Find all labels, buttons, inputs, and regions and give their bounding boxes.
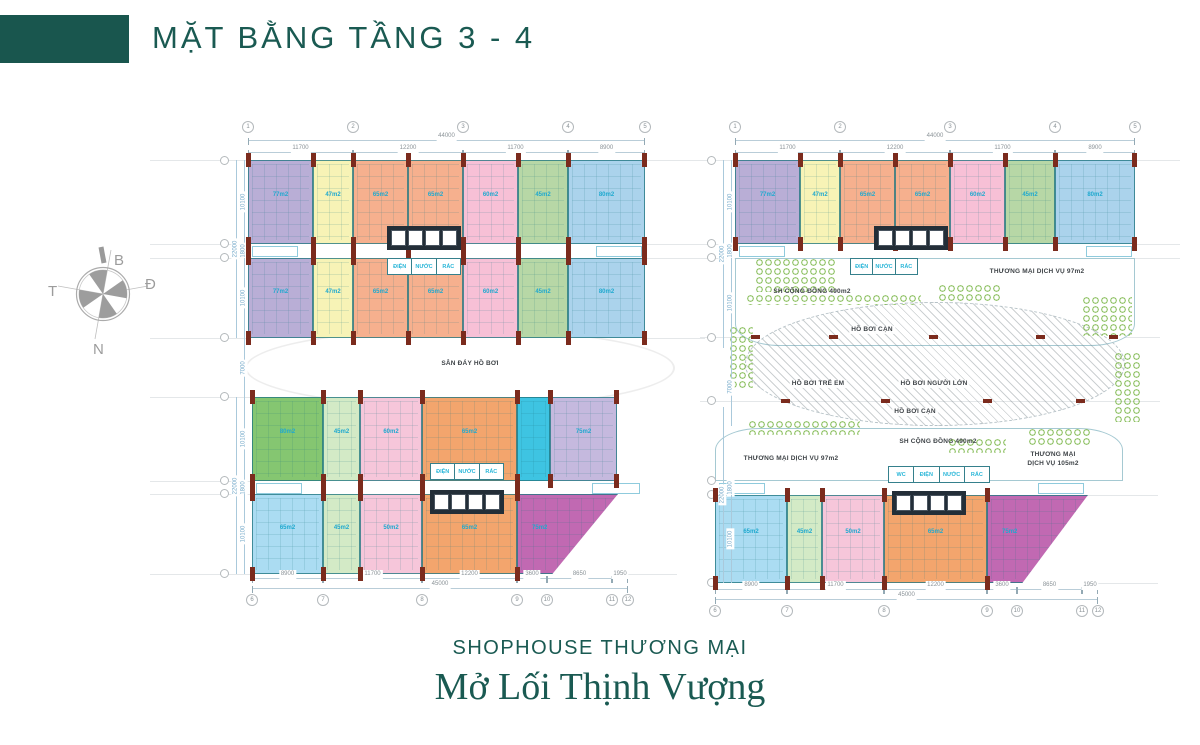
column-marker bbox=[785, 576, 790, 590]
dimension-line-vertical: 22000 bbox=[723, 160, 724, 348]
dimension-line-vertical: 10100 bbox=[244, 397, 245, 481]
service-rooms: WCĐIỆNNƯỚCRÁC bbox=[888, 466, 990, 483]
column-marker bbox=[351, 331, 356, 345]
dimension-tick bbox=[1097, 597, 1098, 604]
dimension-tick bbox=[1017, 587, 1018, 594]
unit-area-label: 60m2 bbox=[360, 428, 422, 436]
unit-area-label: 75m2 bbox=[550, 428, 617, 436]
column-marker bbox=[358, 390, 363, 404]
dimension-value: 44000 bbox=[436, 132, 457, 141]
unit-area-label: 50m2 bbox=[360, 524, 422, 532]
dimension-value: 7000 bbox=[727, 378, 735, 395]
dimension-value: 8900 bbox=[598, 144, 615, 153]
dimension-value: 12200 bbox=[398, 144, 419, 153]
column-marker bbox=[882, 576, 887, 590]
dimension-value: 22000 bbox=[231, 475, 239, 496]
unit-blue bbox=[568, 258, 645, 338]
corridor-fixture bbox=[1086, 246, 1132, 257]
column-marker bbox=[838, 153, 843, 167]
grid-bubble: 11 bbox=[1076, 605, 1088, 617]
unit-yellow bbox=[313, 160, 353, 244]
plan-label: HỒ BƠI CẠN bbox=[849, 326, 895, 334]
plan-label: HỒ BƠI TRẺ EM bbox=[790, 380, 847, 388]
grid-bubble: 11 bbox=[606, 594, 618, 606]
column-marker bbox=[733, 153, 738, 167]
grid-bubble bbox=[220, 476, 229, 485]
dimension-value: 10100 bbox=[239, 429, 247, 450]
column-tick bbox=[1109, 335, 1118, 339]
dimension-tick bbox=[1134, 138, 1135, 145]
unit-blue bbox=[1055, 160, 1135, 244]
grid-line bbox=[1135, 160, 1180, 161]
unit-area-label: 60m2 bbox=[463, 191, 518, 199]
column-marker bbox=[515, 567, 520, 581]
grid-bubble bbox=[220, 569, 229, 578]
column-marker bbox=[351, 237, 356, 251]
column-marker bbox=[948, 153, 953, 167]
service-room-label: ĐIỆN bbox=[851, 259, 873, 274]
corridor-fixture bbox=[596, 246, 642, 257]
grid-bubble: 4 bbox=[1049, 121, 1061, 133]
grid-bubble bbox=[220, 253, 229, 262]
grid-line bbox=[150, 338, 248, 339]
service-room-label: NƯỚC bbox=[455, 464, 479, 479]
grid-bubble bbox=[707, 239, 716, 248]
dimension-value: 12200 bbox=[925, 581, 946, 590]
unit-blue bbox=[252, 494, 323, 574]
dimension-value: 22000 bbox=[718, 485, 726, 506]
unit-area-label: 65m2 bbox=[408, 288, 463, 296]
dimension-line-vertical: 10100 bbox=[244, 258, 245, 338]
grid-bubble bbox=[220, 489, 229, 498]
corridor-fixture bbox=[252, 246, 298, 257]
column-marker bbox=[246, 237, 251, 251]
service-room-label: RÁC bbox=[437, 259, 460, 274]
column-marker bbox=[1132, 153, 1137, 167]
dimension-value: 12200 bbox=[885, 144, 906, 153]
dimension-line: 8650 bbox=[547, 578, 612, 579]
unit-blue bbox=[568, 160, 645, 244]
dimension-line: 44000 bbox=[735, 140, 1135, 141]
dimension-line: 3600 bbox=[517, 578, 547, 579]
dimension-value: 1950 bbox=[1081, 581, 1098, 590]
dimension-line: 8900 bbox=[1055, 152, 1135, 153]
column-marker bbox=[420, 390, 425, 404]
page: MẶT BẰNG TẦNG 3 - 4 B Đ N T 77m247m265m2… bbox=[0, 0, 1200, 745]
plan-label: HỒ BƠI NGƯỜI LỚN bbox=[898, 380, 969, 388]
elevator-cab bbox=[434, 494, 449, 510]
elevator-cab bbox=[930, 495, 945, 511]
grid-bubble: 10 bbox=[1011, 605, 1023, 617]
dimension-value: 8900 bbox=[1086, 144, 1103, 153]
pool-deck-outline bbox=[245, 328, 675, 408]
grid-bubble: 9 bbox=[511, 594, 523, 606]
dimension-value: 3600 bbox=[993, 581, 1010, 590]
unit-light-green bbox=[323, 397, 360, 481]
elevator-core bbox=[387, 226, 461, 250]
elevator-cab bbox=[912, 230, 927, 246]
elevator-cab bbox=[947, 495, 962, 511]
column-marker bbox=[566, 331, 571, 345]
dimension-line-vertical: 10100 bbox=[244, 160, 245, 244]
dimension-value: 45000 bbox=[430, 580, 451, 589]
column-marker bbox=[548, 390, 553, 404]
grid-bubble: 3 bbox=[457, 121, 469, 133]
dimension-tick bbox=[252, 586, 253, 593]
column-marker bbox=[893, 153, 898, 167]
unit-cyan bbox=[517, 397, 550, 481]
service-room-label: ĐIỆN bbox=[388, 259, 412, 274]
corridor-fixture bbox=[1038, 483, 1084, 494]
elevator-cab bbox=[895, 230, 910, 246]
column-marker bbox=[406, 331, 411, 345]
grid-bubble: 8 bbox=[416, 594, 428, 606]
unit-area-label: 65m2 bbox=[422, 524, 517, 532]
column-marker bbox=[461, 251, 466, 265]
grid-bubble: 2 bbox=[834, 121, 846, 133]
dimension-value: 11700 bbox=[777, 144, 797, 153]
column-marker bbox=[250, 474, 255, 488]
column-marker bbox=[614, 390, 619, 404]
dimension-value: 10100 bbox=[239, 192, 247, 213]
dimension-line: 1950 bbox=[1082, 589, 1098, 590]
dimension-line: 8650 bbox=[1017, 589, 1082, 590]
unit-area-label: 47m2 bbox=[313, 288, 353, 296]
column-marker bbox=[516, 331, 521, 345]
column-marker bbox=[250, 567, 255, 581]
column-marker bbox=[321, 487, 326, 501]
dimension-line: 1950 bbox=[612, 578, 628, 579]
column-marker bbox=[246, 153, 251, 167]
dimension-value: 12200 bbox=[459, 570, 480, 579]
column-marker bbox=[798, 237, 803, 251]
grid-bubble: 9 bbox=[981, 605, 993, 617]
dimension-value: 11700 bbox=[825, 581, 845, 590]
dimension-value: 10100 bbox=[239, 524, 247, 545]
unit-area-label: 65m2 bbox=[884, 528, 987, 536]
grid-bubble bbox=[707, 156, 716, 165]
dimension-value: 11700 bbox=[290, 144, 310, 153]
column-marker bbox=[985, 576, 990, 590]
unit-area-label: 65m2 bbox=[895, 191, 950, 199]
column-marker bbox=[515, 487, 520, 501]
unit-area-label: 47m2 bbox=[800, 191, 840, 199]
dimension-tick bbox=[715, 597, 716, 604]
dimension-value: 22000 bbox=[231, 239, 239, 260]
elevator-core bbox=[430, 490, 504, 514]
unit-area-label: 65m2 bbox=[840, 191, 895, 199]
grid-bubble: 12 bbox=[1092, 605, 1104, 617]
column-marker bbox=[985, 488, 990, 502]
column-marker bbox=[311, 251, 316, 265]
elevator-cab bbox=[468, 494, 483, 510]
unit-pink bbox=[360, 494, 422, 574]
unit-area-label: 45m2 bbox=[1005, 191, 1055, 199]
elevator-cab bbox=[408, 230, 423, 246]
grid-bubble: 2 bbox=[347, 121, 359, 133]
grid-bubble: 4 bbox=[562, 121, 574, 133]
column-marker bbox=[1053, 237, 1058, 251]
column-marker bbox=[820, 576, 825, 590]
unit-pink bbox=[360, 397, 422, 481]
column-tick bbox=[929, 335, 938, 339]
service-rooms: ĐIỆNNƯỚCRÁC bbox=[850, 258, 918, 275]
dimension-value: 10100 bbox=[726, 192, 734, 213]
column-marker bbox=[515, 474, 520, 488]
dimension-value: 45000 bbox=[896, 591, 917, 600]
service-room-label: RÁC bbox=[896, 259, 917, 274]
column-marker bbox=[516, 251, 521, 265]
dimension-line-vertical: 1800 bbox=[244, 481, 245, 494]
column-marker bbox=[246, 331, 251, 345]
unit-pink bbox=[463, 160, 518, 244]
elevator-cab bbox=[896, 495, 911, 511]
unit-area-label: 77m2 bbox=[248, 288, 313, 296]
dimension-line-vertical: 10100 bbox=[731, 160, 732, 244]
unit-purple bbox=[248, 258, 313, 338]
plan-label: THƯƠNG MẠI DỊCH VỤ 97m2 bbox=[744, 455, 839, 463]
dimension-value: 3600 bbox=[523, 570, 540, 579]
unit-area-label: 65m2 bbox=[353, 191, 408, 199]
column-marker bbox=[321, 567, 326, 581]
plan-label: SÂN ĐÁY HỒ BƠI bbox=[439, 360, 500, 368]
dimension-line: 8900 bbox=[715, 589, 787, 590]
column-marker bbox=[516, 153, 521, 167]
unit-area-label: 77m2 bbox=[735, 191, 800, 199]
grid-line bbox=[150, 574, 252, 575]
service-room-label: NƯỚC bbox=[412, 259, 436, 274]
column-marker bbox=[566, 251, 571, 265]
grid-bubble: 6 bbox=[246, 594, 258, 606]
grid-line bbox=[1135, 244, 1180, 245]
dimension-line: 8900 bbox=[252, 578, 323, 579]
column-tick bbox=[829, 335, 838, 339]
unit-yellow bbox=[800, 160, 840, 244]
dimension-tick bbox=[547, 576, 548, 583]
grid-bubble bbox=[220, 156, 229, 165]
dimension-line-vertical: 1800 bbox=[244, 244, 245, 258]
dimension-tick bbox=[248, 138, 249, 145]
unit-magenta bbox=[987, 495, 1088, 583]
grid-bubble: 8 bbox=[878, 605, 890, 617]
column-marker bbox=[1132, 237, 1137, 251]
unit-area-label: 75m2 bbox=[987, 528, 1032, 536]
corridor-fixture bbox=[256, 483, 302, 494]
column-marker bbox=[250, 390, 255, 404]
elevator-core bbox=[892, 491, 966, 515]
unit-pink bbox=[822, 495, 884, 583]
elevator-cab bbox=[485, 494, 500, 510]
unit-area-label: 65m2 bbox=[422, 428, 517, 436]
dimension-line: 45000 bbox=[252, 588, 628, 589]
column-marker bbox=[420, 474, 425, 488]
grid-line bbox=[645, 160, 735, 161]
grid-line bbox=[645, 338, 705, 339]
unit-area-label: 80m2 bbox=[568, 288, 645, 296]
grid-bubble: 7 bbox=[317, 594, 329, 606]
unit-area-label: 45m2 bbox=[518, 191, 568, 199]
plan-label: THƯƠNG MẠI bbox=[1030, 451, 1075, 459]
elevator-cab bbox=[442, 230, 457, 246]
column-marker bbox=[358, 474, 363, 488]
column-marker bbox=[785, 488, 790, 502]
service-room-label: WC bbox=[889, 467, 914, 482]
elevator-cab bbox=[913, 495, 928, 511]
column-marker bbox=[250, 487, 255, 501]
unit-area-label: 45m2 bbox=[323, 524, 360, 532]
column-marker bbox=[798, 153, 803, 167]
column-marker bbox=[321, 390, 326, 404]
elevator-cab bbox=[451, 494, 466, 510]
column-marker bbox=[642, 237, 647, 251]
service-room-label: ĐIỆN bbox=[431, 464, 455, 479]
elevator-cab bbox=[929, 230, 944, 246]
column-tick bbox=[983, 399, 992, 403]
grid-line bbox=[1135, 258, 1180, 259]
column-marker bbox=[948, 237, 953, 251]
dimension-line-vertical: 22000 bbox=[236, 397, 237, 574]
column-tick bbox=[881, 399, 890, 403]
elevator-cab bbox=[878, 230, 893, 246]
grid-bubble bbox=[707, 253, 716, 262]
dimension-value: 8900 bbox=[279, 570, 296, 579]
dimension-line: 12200 bbox=[422, 578, 517, 579]
grid-bubble: 7 bbox=[781, 605, 793, 617]
plan-label: SH CỘNG ĐỒNG 490m2 bbox=[899, 438, 976, 446]
unit-green bbox=[1005, 160, 1055, 244]
dimension-line: 11700 bbox=[248, 152, 353, 153]
dimension-value: 11700 bbox=[505, 144, 525, 153]
grid-bubble: 12 bbox=[622, 594, 634, 606]
dimension-line-vertical: 22000 bbox=[723, 407, 724, 583]
unit-area-label: 60m2 bbox=[463, 288, 518, 296]
column-marker bbox=[461, 153, 466, 167]
column-marker bbox=[351, 153, 356, 167]
dimension-value: 1950 bbox=[611, 570, 628, 579]
column-marker bbox=[713, 488, 718, 502]
unit-area-label: 45m2 bbox=[787, 528, 822, 536]
grid-bubble: 1 bbox=[242, 121, 254, 133]
column-marker bbox=[642, 251, 647, 265]
dimension-value: 11700 bbox=[992, 144, 1012, 153]
column-marker bbox=[733, 237, 738, 251]
unit-light-green bbox=[323, 494, 360, 574]
column-tick bbox=[1036, 335, 1045, 339]
grid-bubble: 5 bbox=[1129, 121, 1141, 133]
dimension-line: 3600 bbox=[987, 589, 1017, 590]
dimension-line: 11700 bbox=[787, 589, 884, 590]
column-marker bbox=[1003, 237, 1008, 251]
unit-area-label: 45m2 bbox=[323, 428, 360, 436]
column-marker bbox=[548, 474, 553, 488]
dimension-line-vertical: 1800 bbox=[731, 244, 732, 258]
column-marker bbox=[321, 474, 326, 488]
unit-pink bbox=[463, 258, 518, 338]
dimension-line: 11700 bbox=[735, 152, 840, 153]
dimension-line-vertical: 7000 bbox=[731, 348, 732, 426]
elevator-cab bbox=[425, 230, 440, 246]
column-tick bbox=[781, 399, 790, 403]
dimension-value: 11700 bbox=[362, 570, 382, 579]
dimension-line: 11700 bbox=[323, 578, 422, 579]
dimension-line-vertical: 7000 bbox=[244, 338, 245, 397]
column-marker bbox=[838, 237, 843, 251]
dimension-tick bbox=[627, 586, 628, 593]
dimension-line-vertical: 10100 bbox=[244, 494, 245, 574]
service-rooms: ĐIỆNNƯỚCRÁC bbox=[430, 463, 504, 480]
dimension-tick bbox=[735, 138, 736, 145]
dimension-value: 8900 bbox=[742, 581, 759, 590]
footer-subtitle: SHOPHOUSE THƯƠNG MẠI bbox=[0, 637, 1200, 660]
dimension-value: 1800 bbox=[727, 479, 735, 496]
grid-bubble bbox=[707, 333, 716, 342]
grid-line bbox=[1098, 583, 1158, 584]
dimension-value: 8650 bbox=[1041, 581, 1058, 590]
service-room-label: ĐIỆN bbox=[914, 467, 939, 482]
column-marker bbox=[311, 331, 316, 345]
unit-area-label: 65m2 bbox=[353, 288, 408, 296]
unit-area-label: 50m2 bbox=[822, 528, 884, 536]
unit-area-label: 60m2 bbox=[950, 191, 1005, 199]
unit-lavender bbox=[550, 397, 617, 481]
unit-green bbox=[518, 258, 568, 338]
column-marker bbox=[461, 237, 466, 251]
dimension-value: 44000 bbox=[925, 132, 946, 141]
column-marker bbox=[516, 237, 521, 251]
unit-area-label: 77m2 bbox=[248, 191, 313, 199]
dimension-line: 45000 bbox=[715, 599, 1098, 600]
dimension-line-vertical: 1800 bbox=[731, 480, 732, 495]
grid-line bbox=[150, 160, 248, 161]
grid-bubble bbox=[220, 333, 229, 342]
unit-area-label: 65m2 bbox=[408, 191, 463, 199]
service-room-label: RÁC bbox=[965, 467, 989, 482]
unit-yellow bbox=[313, 258, 353, 338]
column-marker bbox=[420, 487, 425, 501]
dimension-value: 7000 bbox=[240, 359, 248, 376]
plan-label: DỊCH VỤ 105m2 bbox=[1027, 460, 1078, 468]
column-marker bbox=[311, 237, 316, 251]
service-room-label: RÁC bbox=[480, 464, 503, 479]
service-room-label: NƯỚC bbox=[940, 467, 965, 482]
dimension-line-vertical: 10100 bbox=[731, 258, 732, 348]
service-room-label: NƯỚC bbox=[873, 259, 895, 274]
dimension-line-vertical: 22000 bbox=[236, 160, 237, 338]
column-marker bbox=[420, 567, 425, 581]
column-marker bbox=[882, 488, 887, 502]
dimension-line: 12200 bbox=[884, 589, 987, 590]
unit-green bbox=[518, 160, 568, 244]
column-marker bbox=[1053, 153, 1058, 167]
column-marker bbox=[614, 474, 619, 488]
unit-area-label: 75m2 bbox=[517, 524, 562, 532]
column-marker bbox=[1003, 153, 1008, 167]
column-marker bbox=[358, 567, 363, 581]
dimension-tick bbox=[644, 138, 645, 145]
column-marker bbox=[461, 331, 466, 345]
unit-purple bbox=[248, 160, 313, 244]
unit-area-label: 47m2 bbox=[313, 191, 353, 199]
column-marker bbox=[820, 488, 825, 502]
column-marker bbox=[358, 487, 363, 501]
elevator-cab bbox=[391, 230, 406, 246]
grid-bubble: 10 bbox=[541, 594, 553, 606]
grid-bubble: 1 bbox=[729, 121, 741, 133]
unit-pink bbox=[950, 160, 1005, 244]
column-marker bbox=[311, 153, 316, 167]
unit-dark-green bbox=[252, 397, 323, 481]
grid-bubble bbox=[220, 239, 229, 248]
